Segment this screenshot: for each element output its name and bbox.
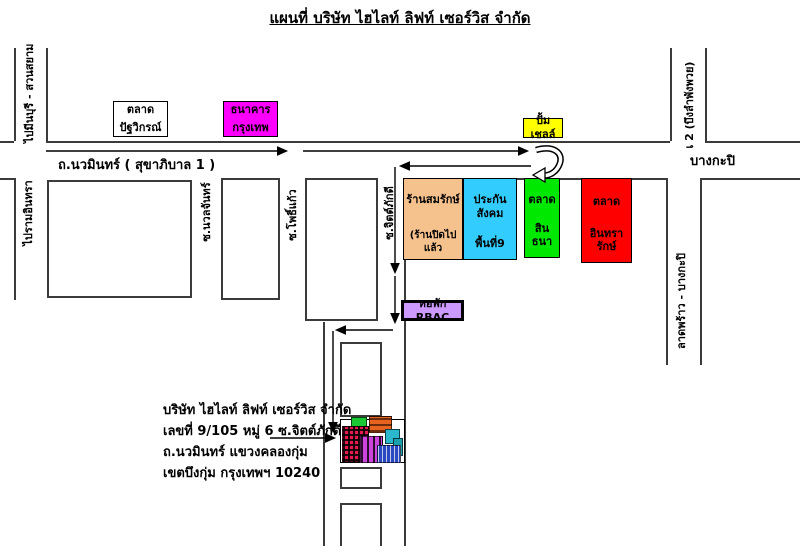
soi-phokaew-label: ซ.โพธิ์แก้ว xyxy=(283,187,301,243)
soi-nuanchan-label: ซ.นวลจันทร์ xyxy=(197,182,215,242)
shell-station-box: ปั้มเชลล์ xyxy=(523,118,563,138)
road-edge xyxy=(46,141,670,143)
road-edge xyxy=(666,178,668,365)
road-edge xyxy=(700,178,800,180)
road-edge xyxy=(670,48,672,141)
city-block xyxy=(305,178,378,321)
company-address: บริษัท ไฮไลท์ ลิฟท์ เซอร์วิส จำกัด เลขที… xyxy=(163,400,351,484)
road-edge xyxy=(705,48,707,141)
bangkok-bank-label-2: กรุงเทพ xyxy=(232,121,268,135)
city-block xyxy=(221,178,280,300)
company-address-line-2: เลขที่ 9/105 หมู่ 6 ซ.จิตต์ภักดี xyxy=(163,421,351,442)
road-edge xyxy=(0,141,14,143)
somrak-shop-box: ร้านสมรักษ์ (ร้านปิดไปแล้ว xyxy=(403,178,463,260)
bangkok-bank-label-1: ธนาคาร xyxy=(231,103,271,117)
company-address-line-3: ถ.นวมินทร์ แขวงคลองกุ่ม xyxy=(163,442,351,463)
soi-chitphakdi-label: ซ.จิตต์ภักดี xyxy=(380,185,398,241)
intharark-market-box: ตลาด อินทรารักษ์ xyxy=(581,178,632,263)
city-block xyxy=(340,503,382,546)
to-minburi-road-label: ไปมีนบุรี - สวนสยาม xyxy=(20,47,38,143)
intharark-market-label-2: อินทรารักษ์ xyxy=(582,227,631,255)
sinthana-market-label-2: สินธนา xyxy=(525,222,559,250)
u-turn-icon xyxy=(533,148,561,182)
company-address-line-1: บริษัท ไฮไลท์ ลิฟท์ เซอร์วิส จำกัด xyxy=(163,400,351,421)
road-edge xyxy=(705,141,800,143)
company-address-line-4: เขตบึงกุ่ม กรุงเทพฯ 10240 xyxy=(163,463,351,484)
company-location-map: แผนที่ บริษัท ไฮไลท์ ลิฟท์ เซอร์วิส จำกั… xyxy=(0,0,800,546)
social-security-label-1: ประกันสังคม xyxy=(464,193,516,221)
somrak-shop-label-1: ร้านสมรักษ์ xyxy=(406,193,459,207)
nawamin-road-label: ถ.นวมินทร์ ( สุขาภิบาล 1 ) xyxy=(58,154,215,175)
road-edge xyxy=(700,178,702,365)
somrak-shop-label-2: (ร้านปิดไปแล้ว xyxy=(404,230,462,255)
sinthana-market-box: ตลาด สินธนา xyxy=(524,178,560,258)
page-title: แผนที่ บริษัท ไฮไลท์ ลิฟท์ เซอร์วิส จำกั… xyxy=(0,6,800,30)
road-edge xyxy=(14,178,16,300)
patwikorn-market-label-2: ปัฐวิกรณ์ xyxy=(119,121,161,135)
to-raminthra-road-label: ไปรามอินทรา xyxy=(19,178,37,248)
shell-station-label: ปั้มเชลล์ xyxy=(524,114,562,142)
bueng-road-label: เ 2 (บึงลำพังพวย) xyxy=(680,45,698,165)
rbac-dormitory-box: หอพัก RBAC xyxy=(401,300,464,321)
bangkok-bank-box: ธนาคาร กรุงเทพ xyxy=(223,101,278,137)
road-edge xyxy=(14,48,16,141)
latphrao-bangkapi-road-label: ลาดพร้าว - บางกะปิ xyxy=(672,253,690,349)
building-block-blue xyxy=(377,445,401,463)
patwikorn-market-box: ตลาด ปัฐวิกรณ์ xyxy=(113,101,168,137)
rbac-dormitory-label: หอพัก RBAC xyxy=(404,297,461,325)
social-security-area9-box: ประกันสังคม พื้นที่9 xyxy=(463,178,517,260)
patwikorn-market-label-1: ตลาด xyxy=(127,103,154,117)
intharark-market-label-1: ตลาด xyxy=(593,195,620,209)
road-edge xyxy=(46,48,48,141)
company-building-illustration xyxy=(340,419,405,463)
sinthana-market-label-1: ตลาด xyxy=(528,193,555,207)
social-security-label-2: พื้นที่9 xyxy=(475,237,505,251)
road-edge xyxy=(0,178,14,180)
city-block xyxy=(47,180,192,298)
